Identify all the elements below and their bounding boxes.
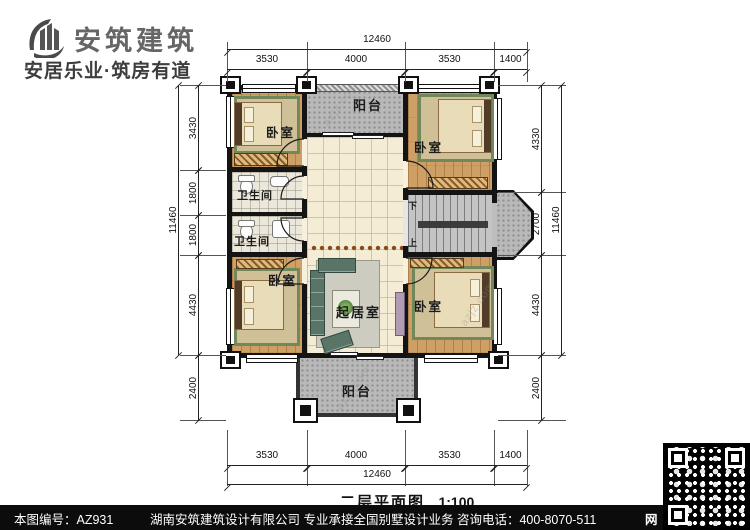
dim-top-seg2: 4000 bbox=[307, 54, 405, 70]
wardrobe-hatch bbox=[236, 259, 284, 269]
wall-pillar bbox=[398, 76, 419, 94]
room-label-bedroom-tl: 卧室 bbox=[266, 122, 295, 141]
door-gap bbox=[302, 139, 307, 166]
dim-bottom-seg2: 4000 bbox=[307, 450, 405, 466]
dim-value: 4000 bbox=[345, 450, 367, 461]
extension-line bbox=[527, 42, 528, 82]
sliding-door-leaf bbox=[356, 356, 384, 360]
dim-left-seg2: 1800 bbox=[198, 170, 214, 215]
qr-finder bbox=[668, 448, 688, 468]
bed bbox=[438, 99, 492, 153]
sofa bbox=[318, 258, 356, 273]
toilet-tank bbox=[238, 175, 255, 182]
dim-value: 4330 bbox=[531, 117, 543, 161]
dim-top-seg1: 3530 bbox=[227, 54, 307, 70]
dim-left-seg1: 3430 bbox=[198, 85, 214, 170]
wall-h-right2 bbox=[403, 252, 497, 257]
stair-up-label: 上 bbox=[408, 236, 417, 249]
dim-value: 3530 bbox=[438, 54, 460, 65]
wall-h-right1 bbox=[403, 190, 497, 195]
bay-window bbox=[493, 190, 534, 260]
dim-value: 3530 bbox=[256, 450, 278, 461]
sliding-door-leaf bbox=[322, 132, 354, 136]
window bbox=[242, 84, 296, 93]
window bbox=[424, 354, 478, 363]
door-gap bbox=[302, 176, 307, 199]
dim-value: 1400 bbox=[499, 450, 521, 461]
dim-top-seg4: 1400 bbox=[494, 54, 527, 70]
footer-bar: 本图编号：AZ931 湖南安筑建筑设计有限公司 专业承接全国别墅设计业务 咨询电… bbox=[0, 505, 750, 530]
wardrobe-hatch bbox=[234, 153, 288, 166]
room-label-bedroom-br: 卧室 bbox=[414, 296, 443, 315]
dim-right-total: 11460 bbox=[561, 85, 577, 355]
wall-h-left1 bbox=[227, 167, 307, 172]
dim-value: 12460 bbox=[363, 469, 391, 480]
dim-value: 4000 bbox=[345, 54, 367, 65]
dim-right-seg1: 4330 bbox=[541, 85, 557, 192]
floorplan-screenshot: { "header": { "logo_text": "安筑建筑", "tagl… bbox=[0, 0, 750, 530]
stair-down-label: 下 bbox=[408, 199, 417, 212]
dim-bottom-total: 12460 bbox=[227, 469, 527, 485]
dim-bottom-seg1: 3530 bbox=[227, 450, 307, 466]
window bbox=[493, 98, 502, 160]
dim-value: 4430 bbox=[531, 283, 543, 327]
dim-value: 3530 bbox=[256, 54, 278, 65]
extension-line bbox=[180, 420, 226, 421]
dim-top-seg3: 3530 bbox=[405, 54, 494, 70]
tv-cabinet bbox=[395, 292, 405, 336]
wardrobe-hatch bbox=[428, 177, 488, 189]
dim-value: 1800 bbox=[188, 213, 200, 257]
dim-left-seg5: 2400 bbox=[198, 355, 214, 420]
door-gap bbox=[403, 161, 408, 188]
washbasin bbox=[270, 176, 289, 187]
dim-left-seg4: 4430 bbox=[198, 255, 214, 355]
sliding-door-leaf bbox=[330, 352, 358, 356]
room-label-bedroom-tr: 卧室 bbox=[414, 137, 443, 156]
dim-value: 2700 bbox=[531, 202, 543, 246]
balcony-pillar-right bbox=[396, 398, 421, 423]
window bbox=[493, 288, 502, 345]
extension-line bbox=[527, 430, 528, 486]
extension-line bbox=[498, 420, 566, 421]
dim-right-seg4: 2400 bbox=[541, 355, 557, 420]
wall-h-left3 bbox=[227, 252, 307, 257]
company-info: 湖南安筑建筑设计有限公司 专业承接全国别墅设计业务 咨询电话：400-8070-… bbox=[150, 509, 596, 528]
wall-h-left2 bbox=[227, 212, 307, 216]
dim-top-total: 12460 bbox=[227, 34, 527, 50]
qr-finder bbox=[725, 448, 745, 468]
wall-pillar bbox=[479, 76, 500, 94]
qr-finder bbox=[668, 505, 688, 525]
shower bbox=[272, 220, 290, 238]
sliding-door-leaf bbox=[352, 135, 384, 139]
wardrobe-hatch bbox=[410, 258, 464, 268]
floor-plan: 下 上 阳台 卧室 卧室 卫生间 卫生间 卧室 卧室 起居室 阳台 azjz.c… bbox=[0, 0, 750, 530]
dim-value: 11460 bbox=[168, 198, 180, 242]
stair-rail bbox=[418, 221, 488, 228]
qr-code bbox=[663, 443, 750, 530]
dim-value: 3530 bbox=[438, 450, 460, 461]
bead-curtain bbox=[310, 245, 403, 251]
dim-bottom-seg3: 3530 bbox=[405, 450, 494, 466]
door-gap bbox=[403, 258, 408, 284]
door-gap bbox=[302, 258, 307, 284]
room-label-bathroom-2: 卫生间 bbox=[234, 233, 270, 249]
dim-right-seg3: 4430 bbox=[541, 255, 557, 355]
toilet-tank bbox=[238, 220, 255, 227]
wall-pillar bbox=[220, 351, 241, 369]
door-gap bbox=[302, 218, 307, 241]
dim-value: 1800 bbox=[188, 171, 200, 215]
dim-value: 4430 bbox=[188, 283, 200, 327]
dim-value: 2400 bbox=[188, 366, 200, 410]
sofa bbox=[310, 270, 325, 336]
wall-pillar bbox=[488, 351, 509, 369]
door-gap bbox=[492, 203, 497, 247]
dim-value: 1400 bbox=[499, 54, 521, 65]
dim-value: 2400 bbox=[531, 366, 543, 410]
dim-value: 3430 bbox=[188, 106, 200, 150]
window bbox=[414, 84, 480, 93]
dim-value: 12460 bbox=[363, 34, 391, 45]
web-char: 网 bbox=[645, 509, 658, 528]
dim-value: 11460 bbox=[551, 198, 563, 242]
window bbox=[246, 354, 298, 363]
drawing-number: 本图编号：AZ931 bbox=[14, 509, 113, 528]
room-label-living: 起居室 bbox=[336, 302, 381, 321]
room-label-bedroom-bl: 卧室 bbox=[268, 270, 297, 289]
dim-left-seg3: 1800 bbox=[198, 215, 214, 255]
dim-bottom-seg4: 1400 bbox=[494, 450, 527, 466]
balcony-pillar-left bbox=[293, 398, 318, 423]
room-label-bathroom-1: 卫生间 bbox=[237, 187, 273, 203]
